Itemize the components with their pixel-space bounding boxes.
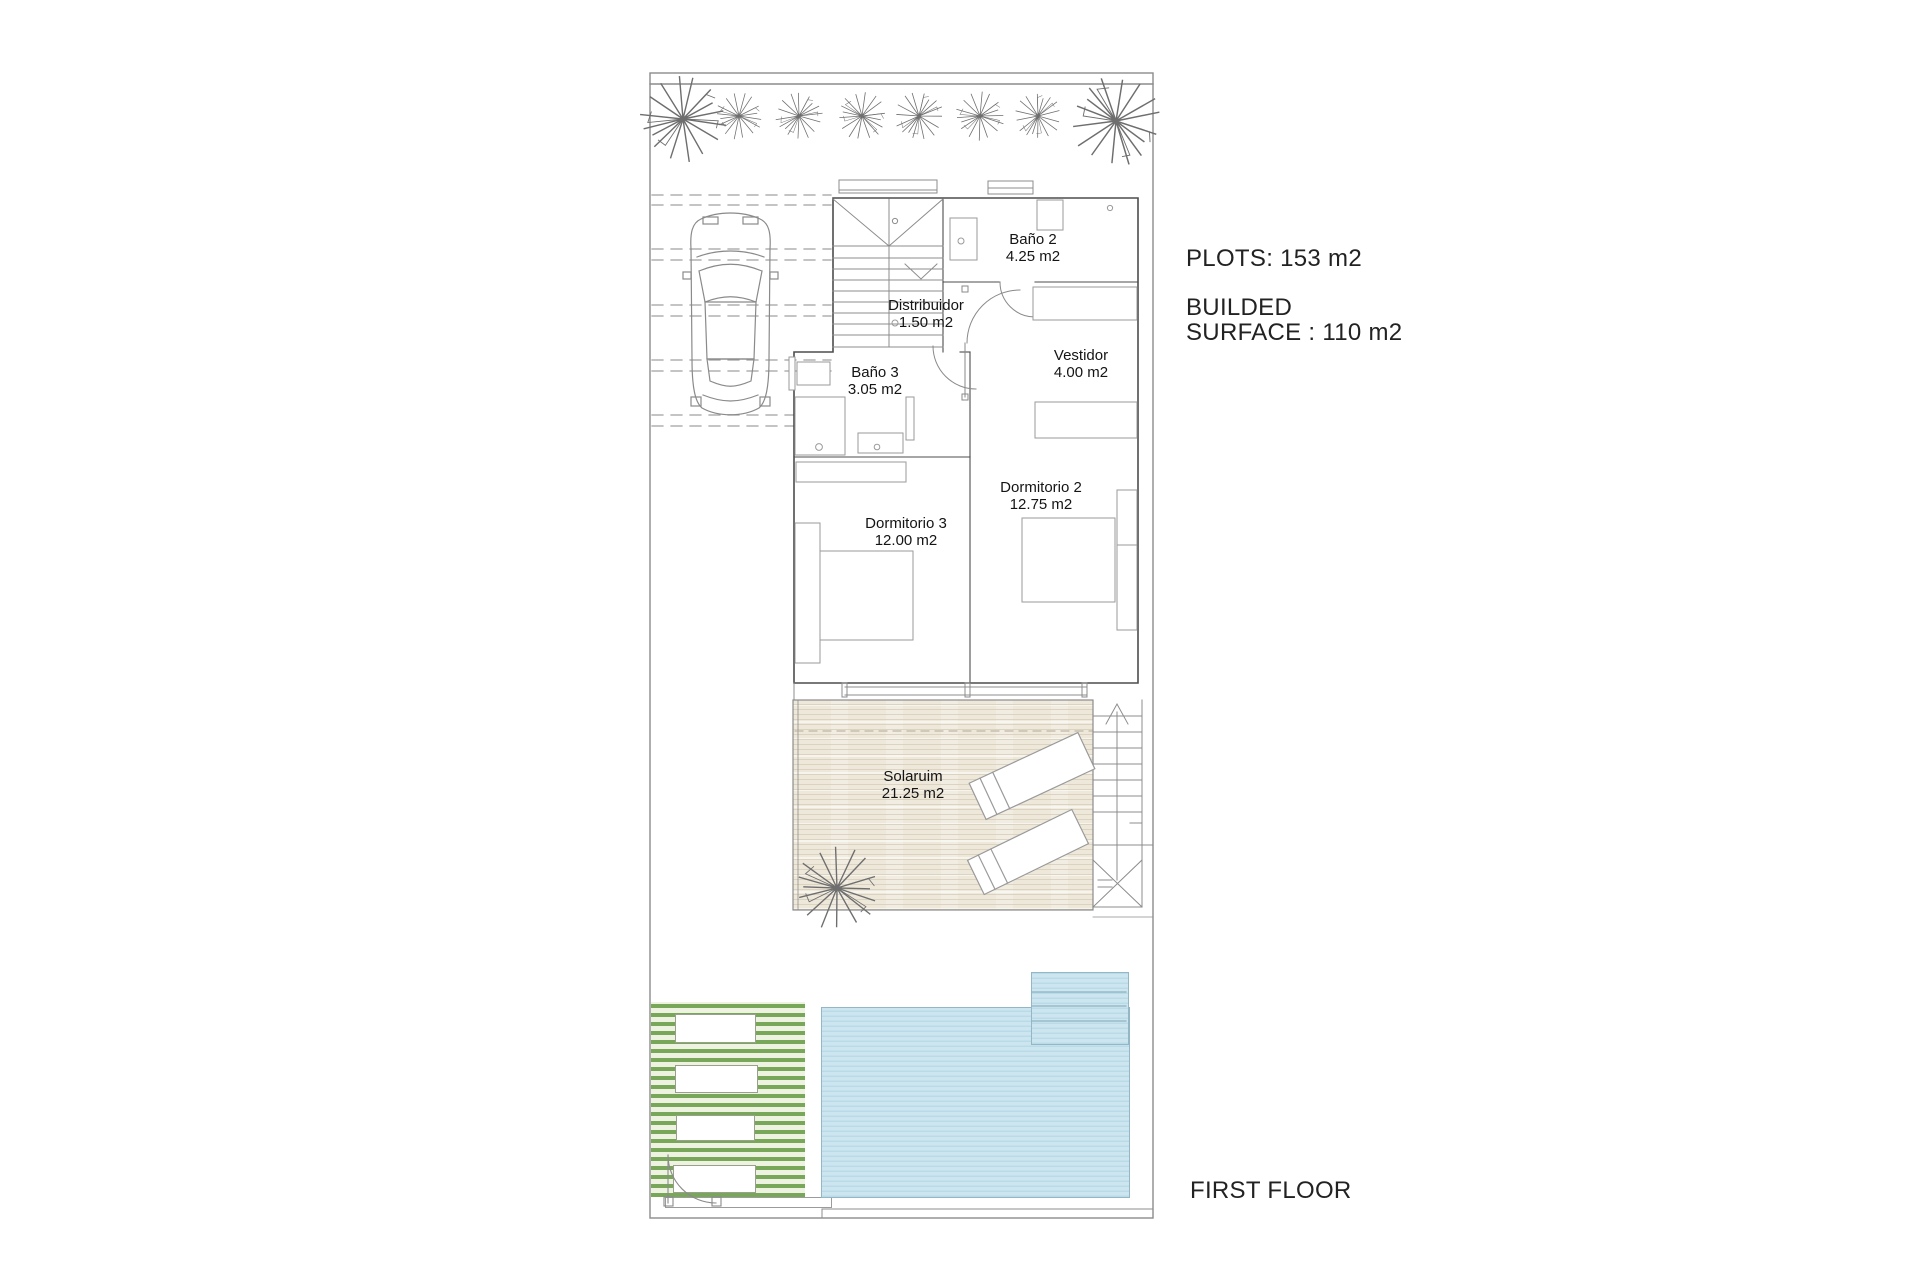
room-label-bano3: Baño 33.05 m2 xyxy=(848,364,902,398)
palm-tree-icon xyxy=(709,86,768,145)
bed3-bed xyxy=(820,551,913,640)
bath3-shower xyxy=(797,362,830,385)
bath2-toilet xyxy=(1037,200,1063,230)
room-label-bano2: Baño 24.25 m2 xyxy=(1006,231,1060,265)
bath3-radiator xyxy=(906,397,914,440)
bed2-wardrobe xyxy=(1117,490,1137,630)
floor-plan-page: { "annotations": { "plots": "PLOTS: 153 … xyxy=(0,0,1920,1280)
room-label-dormitorio3: Dormitorio 312.00 m2 xyxy=(865,515,947,549)
bath3-window xyxy=(789,357,795,390)
room-label-solarium: Solaruim21.25 m2 xyxy=(882,768,945,802)
solarium xyxy=(781,700,1095,944)
plots-annotation: PLOTS: 153 m2 xyxy=(1186,247,1362,271)
bed2-bed xyxy=(1022,518,1115,602)
pool-step-lines xyxy=(1032,992,1126,1021)
driveway-lines xyxy=(652,195,831,426)
palm-tree-icon xyxy=(1057,62,1174,179)
bed3-headboard xyxy=(795,523,820,663)
plot-boundary xyxy=(650,73,1153,1218)
room-label-distribuidor: Distribuidor1.50 m2 xyxy=(888,297,964,331)
palm-tree-icon xyxy=(886,83,952,149)
floor-title: FIRST FLOOR xyxy=(1190,1179,1352,1203)
palm-tree-icon xyxy=(781,832,894,945)
palm-tree-icon xyxy=(641,77,725,161)
tree-row xyxy=(641,62,1175,179)
vestidor-door xyxy=(967,290,1020,343)
sun-lounger xyxy=(969,733,1095,820)
terrace-railing xyxy=(794,683,1087,700)
canopy-and-windows xyxy=(839,180,1033,194)
bath3-vanity xyxy=(795,397,845,455)
palm-tree-icon xyxy=(771,88,827,144)
stairs-down-arrow-icon xyxy=(905,264,937,279)
vestidor-closet xyxy=(1035,402,1137,438)
palm-tree-icon xyxy=(1005,83,1070,148)
vestidor-closet xyxy=(1033,287,1137,320)
plan-linework xyxy=(0,0,1920,1280)
palm-tree-icon xyxy=(952,88,1008,144)
palm-tree-icon xyxy=(828,82,896,150)
garden-gate xyxy=(664,1155,721,1206)
gate-door-arc xyxy=(668,1155,716,1203)
exterior-staircase xyxy=(1093,700,1153,917)
sun-lounger xyxy=(968,809,1089,894)
builded-surface-annotation: BUILDED SURFACE : 110 m2 xyxy=(1186,295,1402,345)
room-label-dormitorio2: Dormitorio 212.75 m2 xyxy=(1000,479,1082,513)
bed3-wardrobe xyxy=(796,462,906,482)
bathroom2-door xyxy=(1000,282,1035,317)
bath3-sink xyxy=(858,433,903,453)
car-icon xyxy=(683,213,778,415)
room-label-vestidor: Vestidor4.00 m2 xyxy=(1054,347,1108,381)
